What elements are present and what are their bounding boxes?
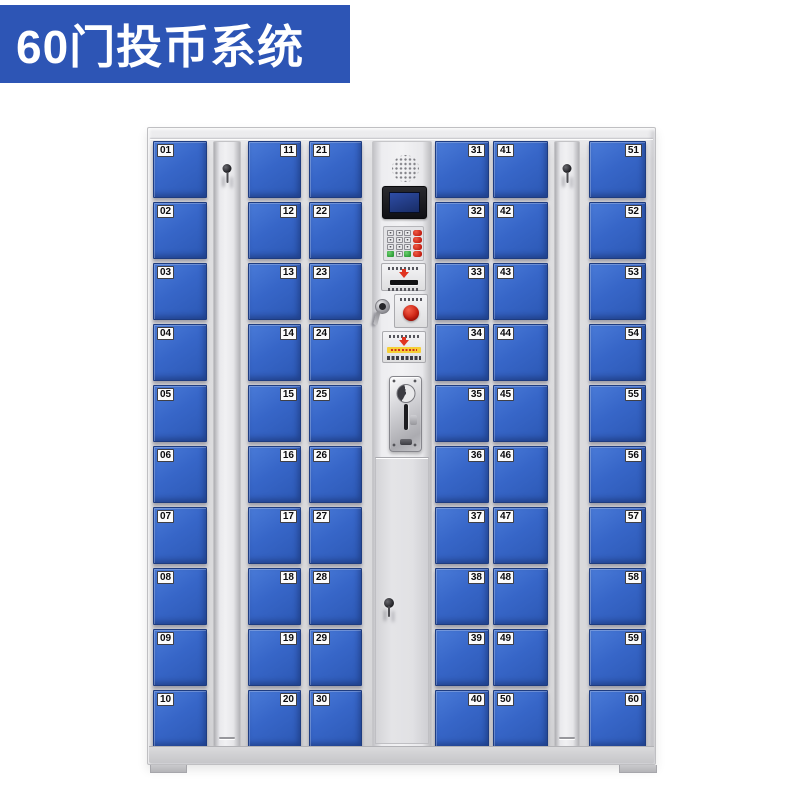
door-number-label: 08	[157, 571, 174, 584]
keypad-key[interactable]	[413, 251, 422, 257]
door-number-label: 30	[313, 693, 330, 706]
door-column: 31323334353637383940	[435, 141, 489, 747]
locker-door-03[interactable]: 03	[153, 263, 207, 320]
cabinet-base	[149, 746, 654, 763]
locker-door-60[interactable]: 60	[589, 690, 646, 747]
locker-door-41[interactable]: 41	[493, 141, 548, 198]
door-cell: 57	[589, 507, 646, 564]
locker-door-56[interactable]: 56	[589, 446, 646, 503]
keypad-key[interactable]	[404, 251, 411, 257]
door-cell: 14	[248, 324, 301, 381]
door-number-label: 01	[157, 144, 174, 157]
keypad-key[interactable]	[413, 244, 422, 250]
door-number-label: 43	[497, 266, 514, 279]
door-number-label: 42	[497, 205, 514, 218]
door-number-label: 35	[468, 388, 485, 401]
door-number-label: 04	[157, 327, 174, 340]
door-number-label: 36	[468, 449, 485, 462]
door-number-label: 45	[497, 388, 514, 401]
door-cell: 26	[309, 446, 362, 503]
door-number-label: 29	[313, 632, 330, 645]
locker-door-06[interactable]: 06	[153, 446, 207, 503]
door-number-label: 10	[157, 693, 174, 706]
door-cell: 04	[153, 324, 207, 381]
locker-door-31[interactable]: 31	[435, 141, 489, 198]
coin-dial-icon	[396, 384, 415, 403]
keypad-key[interactable]	[387, 237, 394, 243]
door-number-label: 31	[468, 144, 485, 157]
lock-strip	[213, 141, 241, 747]
door-number-label: 39	[468, 632, 485, 645]
door-number-label: 59	[625, 632, 642, 645]
locker-cabinet: 01020304050607080910 1112131415161718192…	[147, 127, 656, 765]
control-panel-column	[372, 141, 432, 747]
master-keyhole-icon[interactable]	[563, 164, 572, 173]
locker-door-04[interactable]: 04	[153, 324, 207, 381]
door-cell: 34	[435, 324, 489, 381]
locker-door-45[interactable]: 45	[493, 385, 548, 442]
locker-door-59[interactable]: 59	[589, 629, 646, 686]
locker-door-58[interactable]: 58	[589, 568, 646, 625]
door-number-label: 41	[497, 144, 514, 157]
door-number-label: 06	[157, 449, 174, 462]
locker-door-07[interactable]: 07	[153, 507, 207, 564]
locker-door-12[interactable]: 12	[248, 202, 301, 259]
door-number-label: 20	[280, 693, 297, 706]
door-cell: 19	[248, 629, 301, 686]
door-cell: 39	[435, 629, 489, 686]
door-cell: 20	[248, 690, 301, 747]
door-number-label: 18	[280, 571, 297, 584]
control-panel	[373, 142, 431, 457]
door-cell: 02	[153, 202, 207, 259]
service-door[interactable]	[375, 457, 429, 744]
card-reader[interactable]	[381, 263, 426, 291]
locker-door-33[interactable]: 33	[435, 263, 489, 320]
door-number-label: 53	[625, 266, 642, 279]
keypad-key[interactable]	[396, 237, 403, 243]
locker-door-13[interactable]: 13	[248, 263, 301, 320]
keypad-key[interactable]	[387, 230, 394, 236]
instruction-plate	[382, 331, 426, 363]
door-column: 41424344454647484950	[493, 141, 548, 747]
door-cell: 15	[248, 385, 301, 442]
door-number-label: 27	[313, 510, 330, 523]
door-cell: 55	[589, 385, 646, 442]
door-cell: 52	[589, 202, 646, 259]
panel-keyhole-icon[interactable]	[375, 299, 390, 314]
keypad-key[interactable]	[396, 244, 403, 250]
door-cell: 45	[493, 385, 548, 442]
coin-slot[interactable]	[404, 404, 408, 430]
door-number-label: 55	[625, 388, 642, 401]
locker-door-18[interactable]: 18	[248, 568, 301, 625]
door-cell: 60	[589, 690, 646, 747]
locker-door-38[interactable]: 38	[435, 568, 489, 625]
locker-door-16[interactable]: 16	[248, 446, 301, 503]
service-door-keyhole-icon[interactable]	[384, 598, 394, 608]
door-cell: 33	[435, 263, 489, 320]
locker-door-10[interactable]: 10	[153, 690, 207, 747]
door-cell: 49	[493, 629, 548, 686]
locker-door-30[interactable]: 30	[309, 690, 362, 747]
door-cell: 48	[493, 568, 548, 625]
locker-door-51[interactable]: 51	[589, 141, 646, 198]
red-button[interactable]	[403, 305, 419, 321]
door-number-label: 38	[468, 571, 485, 584]
locker-door-57[interactable]: 57	[589, 507, 646, 564]
lock-strip	[554, 141, 580, 747]
locker-door-35[interactable]: 35	[435, 385, 489, 442]
locker-door-34[interactable]: 34	[435, 324, 489, 381]
door-number-label: 03	[157, 266, 174, 279]
door-cell: 12	[248, 202, 301, 259]
door-number-label: 34	[468, 327, 485, 340]
door-number-label: 09	[157, 632, 174, 645]
door-cell: 11	[248, 141, 301, 198]
door-number-label: 51	[625, 144, 642, 157]
door-cell: 41	[493, 141, 548, 198]
keypad-key[interactable]	[413, 230, 422, 236]
door-cell: 50	[493, 690, 548, 747]
locker-door-23[interactable]: 23	[309, 263, 362, 320]
door-number-label: 28	[313, 571, 330, 584]
door-cell: 03	[153, 263, 207, 320]
door-cell: 38	[435, 568, 489, 625]
numeric-keypad[interactable]	[383, 226, 424, 261]
door-column: 01020304050607080910	[153, 141, 207, 747]
locker-door-48[interactable]: 48	[493, 568, 548, 625]
keypad-key[interactable]	[387, 244, 394, 250]
door-cell: 09	[153, 629, 207, 686]
door-number-label: 56	[625, 449, 642, 462]
lcd-screen	[389, 192, 420, 213]
locker-door-39[interactable]: 39	[435, 629, 489, 686]
locker-door-50[interactable]: 50	[493, 690, 548, 747]
locker-door-43[interactable]: 43	[493, 263, 548, 320]
instruction-sublabel	[387, 356, 421, 360]
door-cell: 32	[435, 202, 489, 259]
locker-door-36[interactable]: 36	[435, 446, 489, 503]
keypad-key[interactable]	[396, 230, 403, 236]
door-cell: 16	[248, 446, 301, 503]
cabinet-foot-left	[150, 765, 187, 773]
door-number-label: 46	[497, 449, 514, 462]
coin-knob	[410, 415, 417, 425]
door-cell: 37	[435, 507, 489, 564]
cabinet-foot-right	[619, 765, 657, 773]
door-cell: 30	[309, 690, 362, 747]
door-cell: 44	[493, 324, 548, 381]
door-number-label: 40	[468, 693, 485, 706]
door-cell: 40	[435, 690, 489, 747]
locker-door-42[interactable]: 42	[493, 202, 548, 259]
coin-acceptor[interactable]	[389, 376, 422, 452]
door-number-label: 32	[468, 205, 485, 218]
locker-door-15[interactable]: 15	[248, 385, 301, 442]
door-cell: 35	[435, 385, 489, 442]
keypad-key[interactable]	[396, 251, 403, 257]
speaker-grille-icon	[392, 155, 419, 182]
door-cell: 07	[153, 507, 207, 564]
door-number-label: 48	[497, 571, 514, 584]
locker-door-49[interactable]: 49	[493, 629, 548, 686]
keypad-key[interactable]	[404, 237, 411, 243]
keypad-key[interactable]	[413, 237, 422, 243]
door-number-label: 44	[497, 327, 514, 340]
door-cell: 29	[309, 629, 362, 686]
door-cell: 59	[589, 629, 646, 686]
locker-door-54[interactable]: 54	[589, 324, 646, 381]
door-cell: 28	[309, 568, 362, 625]
door-number-label: 21	[313, 144, 330, 157]
locker-door-29[interactable]: 29	[309, 629, 362, 686]
door-cell: 43	[493, 263, 548, 320]
door-cell: 18	[248, 568, 301, 625]
door-number-label: 52	[625, 205, 642, 218]
keypad-key[interactable]	[387, 251, 394, 257]
arrow-down-icon	[399, 272, 409, 278]
door-number-label: 16	[280, 449, 297, 462]
lcd-display	[382, 186, 427, 219]
button-plate-label	[400, 298, 422, 301]
door-number-label: 33	[468, 266, 485, 279]
locker-door-21[interactable]: 21	[309, 141, 362, 198]
locker-door-28[interactable]: 28	[309, 568, 362, 625]
page: { "banner": { "text": "60门投币系统" }, "cabi…	[0, 0, 800, 800]
locker-door-52[interactable]: 52	[589, 202, 646, 259]
door-number-label: 17	[280, 510, 297, 523]
locker-door-46[interactable]: 46	[493, 446, 548, 503]
locker-door-25[interactable]: 25	[309, 385, 362, 442]
door-cell: 01	[153, 141, 207, 198]
product-banner-title: 60门投币系统	[0, 5, 350, 83]
locker-door-44[interactable]: 44	[493, 324, 548, 381]
door-number-label: 22	[313, 205, 330, 218]
door-number-label: 50	[497, 693, 514, 706]
locker-door-26[interactable]: 26	[309, 446, 362, 503]
door-cell: 54	[589, 324, 646, 381]
door-number-label: 23	[313, 266, 330, 279]
card-slot[interactable]	[390, 280, 418, 285]
locker-door-37[interactable]: 37	[435, 507, 489, 564]
door-cell: 47	[493, 507, 548, 564]
door-cell: 17	[248, 507, 301, 564]
door-number-label: 58	[625, 571, 642, 584]
locker-door-17[interactable]: 17	[248, 507, 301, 564]
keypad-key[interactable]	[404, 230, 411, 236]
door-cell: 10	[153, 690, 207, 747]
arrow-down-icon	[399, 340, 409, 346]
locker-door-20[interactable]: 20	[248, 690, 301, 747]
locker-door-19[interactable]: 19	[248, 629, 301, 686]
door-cell: 42	[493, 202, 548, 259]
locker-door-40[interactable]: 40	[435, 690, 489, 747]
door-number-label: 60	[625, 693, 642, 706]
door-number-label: 02	[157, 205, 174, 218]
door-cell: 56	[589, 446, 646, 503]
door-column: 21222324252627282930	[309, 141, 362, 747]
keypad-key[interactable]	[404, 244, 411, 250]
locker-door-47[interactable]: 47	[493, 507, 548, 564]
door-column: 11121314151617181920	[248, 141, 301, 747]
locker-door-09[interactable]: 09	[153, 629, 207, 686]
instruction-highlight-strip	[387, 347, 421, 353]
door-cell: 23	[309, 263, 362, 320]
door-number-label: 14	[280, 327, 297, 340]
locker-door-11[interactable]: 11	[248, 141, 301, 198]
door-number-label: 15	[280, 388, 297, 401]
door-number-label: 26	[313, 449, 330, 462]
door-number-label: 47	[497, 510, 514, 523]
door-number-label: 54	[625, 327, 642, 340]
lock-strip-slot	[559, 737, 574, 739]
door-cell: 51	[589, 141, 646, 198]
master-keyhole-icon[interactable]	[223, 164, 232, 173]
door-cell: 24	[309, 324, 362, 381]
locker-door-55[interactable]: 55	[589, 385, 646, 442]
door-cell: 53	[589, 263, 646, 320]
coin-return-button[interactable]	[400, 439, 412, 445]
door-cell: 13	[248, 263, 301, 320]
door-cell: 25	[309, 385, 362, 442]
door-cell: 06	[153, 446, 207, 503]
door-column: 51525354555657585960	[589, 141, 646, 747]
door-cell: 46	[493, 446, 548, 503]
locker-door-24[interactable]: 24	[309, 324, 362, 381]
door-cell: 22	[309, 202, 362, 259]
door-number-label: 25	[313, 388, 330, 401]
door-cell: 36	[435, 446, 489, 503]
door-number-label: 49	[497, 632, 514, 645]
door-cell: 08	[153, 568, 207, 625]
door-cell: 58	[589, 568, 646, 625]
locker-door-53[interactable]: 53	[589, 263, 646, 320]
door-number-label: 19	[280, 632, 297, 645]
card-reader-sublabel	[388, 288, 418, 291]
locker-door-05[interactable]: 05	[153, 385, 207, 442]
locker-door-08[interactable]: 08	[153, 568, 207, 625]
door-cell: 27	[309, 507, 362, 564]
door-cell: 21	[309, 141, 362, 198]
door-number-label: 07	[157, 510, 174, 523]
lock-assembly	[373, 294, 433, 330]
door-number-label: 11	[280, 144, 297, 157]
locker-door-32[interactable]: 32	[435, 202, 489, 259]
door-number-label: 24	[313, 327, 330, 340]
button-plate	[394, 294, 428, 328]
door-number-label: 37	[468, 510, 485, 523]
door-cell: 05	[153, 385, 207, 442]
door-number-label: 13	[280, 266, 297, 279]
door-cell: 31	[435, 141, 489, 198]
door-number-label: 12	[280, 205, 297, 218]
locker-door-27[interactable]: 27	[309, 507, 362, 564]
door-number-label: 57	[625, 510, 642, 523]
door-number-label: 05	[157, 388, 174, 401]
lock-strip-slot	[219, 737, 236, 739]
locker-door-22[interactable]: 22	[309, 202, 362, 259]
locker-door-01[interactable]: 01	[153, 141, 207, 198]
locker-door-02[interactable]: 02	[153, 202, 207, 259]
locker-door-14[interactable]: 14	[248, 324, 301, 381]
